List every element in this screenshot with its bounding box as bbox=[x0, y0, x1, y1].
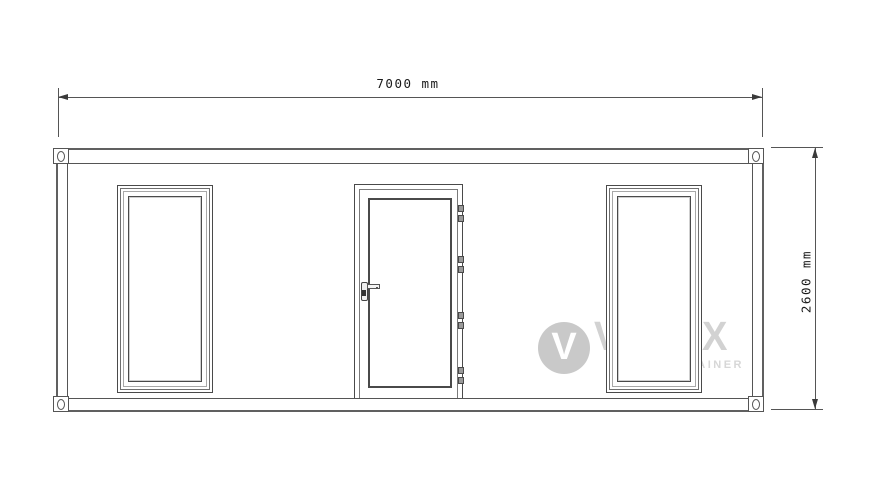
height-dimension-line bbox=[815, 148, 816, 409]
door-handle-lever-icon bbox=[367, 284, 380, 289]
door-hinge-icon bbox=[458, 256, 464, 273]
corner-casting-bottom-right bbox=[748, 396, 764, 412]
height-dimension-label: 2600 mm bbox=[799, 222, 814, 342]
window-pane bbox=[128, 196, 202, 382]
arrowhead-left-icon bbox=[58, 94, 68, 100]
corner-casting-bottom-left bbox=[53, 396, 69, 412]
right-wall-line bbox=[752, 163, 753, 398]
arrowhead-right-icon bbox=[752, 94, 762, 100]
arrowhead-up-icon bbox=[812, 148, 818, 158]
left-wall-line bbox=[67, 163, 68, 398]
arrowhead-down-icon bbox=[812, 399, 818, 409]
door-lock-icon bbox=[362, 290, 366, 296]
casting-hole-icon bbox=[57, 151, 65, 162]
corner-casting-top-left bbox=[53, 148, 69, 164]
door-leaf bbox=[368, 198, 452, 388]
bottom-rail-line bbox=[67, 398, 752, 399]
width-dimension-label: 7000 mm bbox=[108, 76, 708, 91]
door-keyhole-dot-icon bbox=[376, 287, 378, 289]
window-left bbox=[117, 185, 213, 393]
casting-hole-icon bbox=[57, 399, 65, 410]
casting-hole-icon bbox=[752, 399, 760, 410]
width-extension-line-right bbox=[762, 88, 763, 137]
height-extension-line-bottom bbox=[771, 409, 823, 410]
door-hinge-icon bbox=[458, 367, 464, 384]
corner-casting-top-right bbox=[748, 148, 764, 164]
door-hinge-icon bbox=[458, 205, 464, 222]
elevation-drawing-canvas: V VILLEX CONTAINER 7000 mm 26 bbox=[0, 0, 872, 490]
door-hinge-icon bbox=[458, 312, 464, 329]
top-rail-line bbox=[67, 163, 752, 164]
width-dimension-line bbox=[58, 97, 763, 98]
casting-hole-icon bbox=[752, 151, 760, 162]
window-right bbox=[606, 185, 702, 393]
window-pane bbox=[617, 196, 691, 382]
